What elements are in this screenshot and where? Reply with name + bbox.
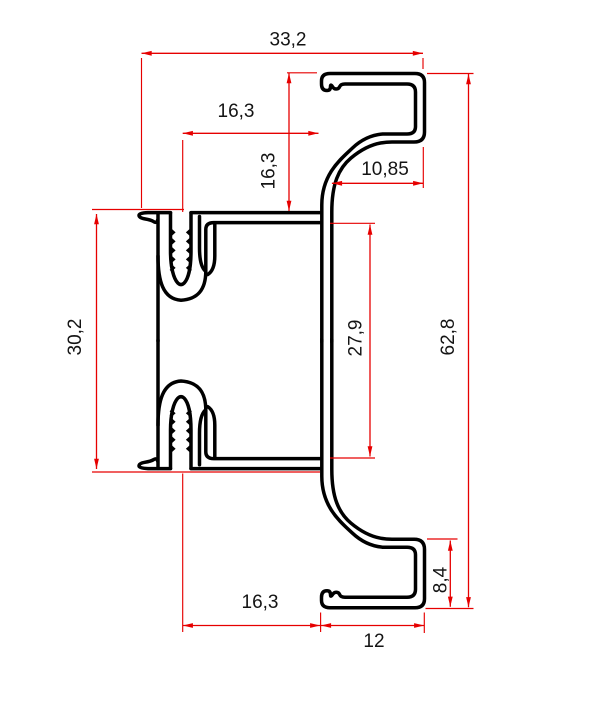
- label-body-height: 30,2: [65, 319, 86, 356]
- label-top-hook-opening-width: 10,85: [361, 159, 409, 180]
- top-hook-and-right-wall-path: [322, 74, 425, 343]
- label-overall-height: 62,8: [438, 319, 459, 356]
- profile-technical-drawing: 33,2 16,3 16,3 10,85 30,2 27,9 62,8 8,4 …: [0, 0, 608, 706]
- cavity-wall-face: [208, 224, 215, 275]
- label-bottom-hook-width: 12: [363, 631, 384, 652]
- left-flange-tip-and-curl: [139, 213, 171, 223]
- label-slot-to-hook-bottom: 16,3: [242, 592, 279, 613]
- profile-outline-top-half: [139, 74, 425, 343]
- label-overall-width-top: 33,2: [270, 30, 307, 51]
- profile-outline: [139, 74, 425, 608]
- dimension-labels: 33,2 16,3 16,3 10,85 30,2 27,9 62,8 8,4 …: [65, 30, 459, 653]
- screw-tube-wrap-and-inner-surface: [158, 223, 321, 301]
- label-slot-to-hook-top: 16,3: [218, 101, 255, 122]
- extension-lines: [92, 58, 474, 633]
- label-inner-cavity-height: 27,9: [346, 320, 367, 357]
- technical-drawing-canvas: 33,2 16,3 16,3 10,85 30,2 27,9 62,8 8,4 …: [0, 0, 608, 706]
- dimensions: 33,2 16,3 16,3 10,85 30,2 27,9 62,8 8,4 …: [65, 30, 474, 653]
- label-hook-height-above-body: 16,3: [259, 153, 280, 190]
- profile-outline-bottom-half-mirror: [139, 339, 425, 608]
- label-bottom-hook-height: 8,4: [431, 566, 452, 593]
